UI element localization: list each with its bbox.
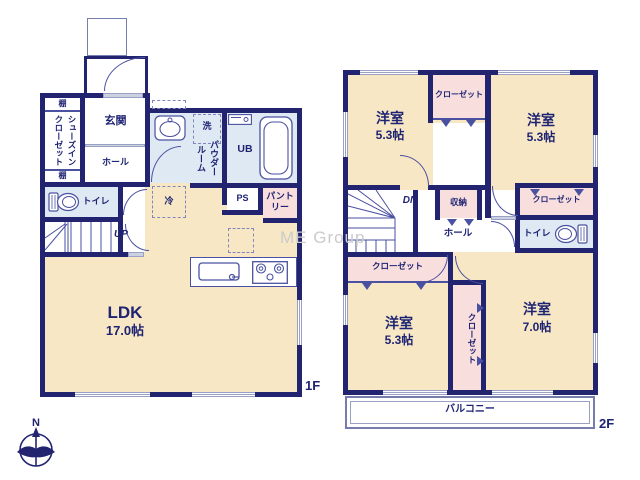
fridge-label: 冷 — [152, 196, 186, 206]
floorplan-image: 棚 シューズインクローゼット 棚 玄関 ホール トイレ UP 洗 パウダールーム… — [0, 0, 640, 480]
f2-window-west-1 — [343, 112, 348, 157]
bathtub-icon — [259, 116, 293, 180]
room-label-ub: UB — [227, 143, 263, 155]
f1-ldk-dashed-square — [228, 228, 254, 253]
wall — [485, 75, 491, 218]
wall — [222, 210, 263, 215]
washer-label: 洗 — [193, 121, 221, 131]
hanger-mark — [362, 283, 372, 290]
f1-window-south-2 — [192, 392, 255, 397]
f2-window-east-1 — [593, 135, 598, 167]
hanger-mark — [477, 356, 484, 366]
room-label-bedroom-sw: 洋室 — [368, 315, 430, 331]
f2-window-north-1 — [360, 70, 418, 75]
f1-ldk-door-sill — [128, 252, 144, 257]
watermark-text: ME Group — [280, 228, 365, 248]
f1-high-window — [152, 100, 186, 109]
wall — [145, 113, 150, 183]
f1-entrance-canopy — [87, 18, 127, 56]
balcony-label: バルコニー — [345, 404, 595, 416]
stairs-dn-label: DN — [396, 195, 424, 207]
wall — [515, 248, 593, 253]
room-size-bedroom-se: 7.0帖 — [502, 321, 572, 335]
room-label-ldk: LDK — [85, 303, 165, 323]
f1-genkan-step — [85, 144, 145, 147]
room-label-bedroom-nw: 洋室 — [360, 110, 420, 126]
wall — [481, 285, 486, 390]
room-size-bedroom-sw: 5.3帖 — [368, 334, 430, 348]
f2-hall-upper — [433, 123, 485, 185]
room-size-bedroom-nw: 5.3帖 — [360, 129, 420, 143]
wall — [297, 108, 302, 397]
hanger-mark — [416, 283, 426, 290]
room-label-toilet-1f: トイレ — [76, 196, 116, 206]
floor-label-1f: 1F — [305, 379, 335, 394]
compass-n-label: N — [32, 417, 40, 429]
room-label-bedroom-ne: 洋室 — [510, 112, 572, 128]
shelf-label: 棚 — [45, 99, 80, 108]
wall — [258, 188, 263, 215]
compass-north-icon: N — [12, 414, 60, 476]
room-label-hall-1f: ホール — [88, 157, 143, 167]
room-label-shoes-closet: シューズインクローゼット — [46, 112, 78, 168]
f2-window-south-1 — [383, 390, 447, 395]
wall — [222, 113, 227, 205]
room-size-bedroom-ne: 5.3帖 — [510, 131, 572, 145]
room-label-powder: パウダールーム — [192, 138, 220, 178]
toilet-icon — [550, 222, 588, 246]
shelf-label: 棚 — [45, 171, 80, 180]
hanger-mark — [464, 219, 474, 226]
storage-label: 収納 — [437, 198, 480, 208]
stairs-up-label: UP — [106, 229, 136, 241]
wall — [520, 215, 593, 220]
f1-entrance-sill — [103, 93, 143, 98]
f2-ne-door-sill — [491, 216, 516, 220]
kitchen-sink-icon — [198, 262, 242, 282]
hanger-mark — [477, 303, 484, 313]
f2-window-east-2 — [593, 333, 598, 363]
hanger-mark — [441, 120, 451, 127]
room-label-hall-2f: ホール — [440, 229, 476, 240]
room-label-ps: PS — [227, 193, 258, 203]
closet-label-sw: クローゼット — [355, 262, 440, 272]
room-label-pantry: パントリー — [264, 191, 296, 213]
wall — [80, 98, 85, 182]
f1-window-east — [297, 300, 302, 345]
bath-vanity-icon — [228, 114, 252, 125]
floor-label-2f: 2F — [599, 417, 629, 432]
closet-label-top: クローゼット — [433, 90, 485, 99]
wall — [448, 252, 453, 390]
sink-icon — [154, 115, 186, 141]
closet-label-mid: クローゼット — [456, 296, 478, 381]
wall — [118, 187, 123, 257]
wall — [515, 183, 593, 188]
f2-window-west-2 — [343, 295, 348, 325]
wall — [45, 182, 150, 187]
stove-icon — [252, 261, 288, 284]
room-size-ldk: 17.0帖 — [85, 324, 165, 339]
room-label-toilet-2f: トイレ — [521, 228, 553, 238]
room-label-bedroom-se: 洋室 — [502, 301, 572, 317]
room-label-genkan: 玄関 — [88, 115, 143, 128]
hanger-mark — [466, 120, 476, 127]
f2-window-south-2 — [492, 390, 553, 395]
wall — [263, 218, 302, 223]
closet-label-ne: クローゼット — [521, 195, 592, 204]
f1-window-south-1 — [75, 392, 150, 397]
wall — [45, 252, 135, 257]
hanger-mark — [447, 219, 457, 226]
f2-window-north-2 — [498, 70, 570, 75]
